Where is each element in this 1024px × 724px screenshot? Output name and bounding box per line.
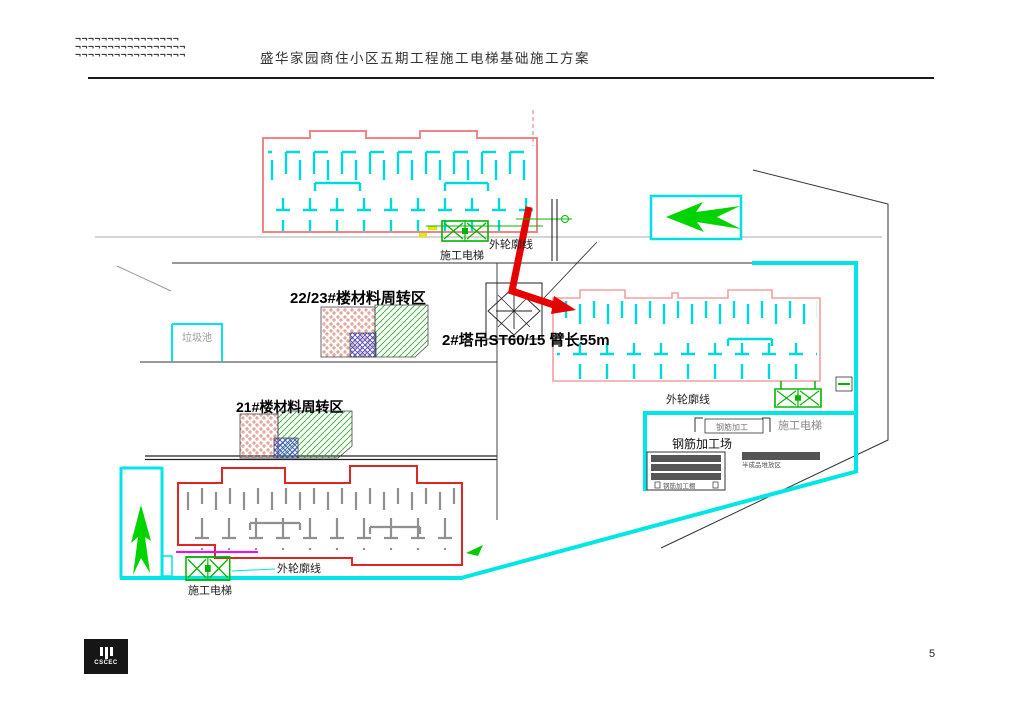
crane-label: 2#塔吊ST60/15 臂长55m (442, 331, 610, 349)
document-page: ¬¬¬¬¬¬¬¬¬¬¬¬¬¬¬¬ ¬¬¬¬¬¬¬¬¬¬¬¬¬¬¬¬¬ ¬¬¬¬¬… (0, 0, 1024, 724)
rebar-box-label: 钢筋加工 (716, 422, 748, 432)
page-number: 5 (929, 648, 935, 660)
small-green-arrow-icon (466, 545, 483, 556)
rebar-yard-label: 钢筋加工场 (672, 436, 732, 451)
rebar-note-bottom: 钢筋加工棚 (663, 481, 696, 490)
building-top (263, 131, 537, 232)
rebar-note-right: 半成品堆放区 (742, 460, 782, 469)
footer-company-logo: CSCEC (84, 639, 128, 674)
site-plan-drawing: 施工电梯 外轮廓线 22/23#楼材料周转区 2#塔吊ST60/15 臂长55m… (0, 0, 1024, 724)
outline-bottom-label: 外轮廓线 (277, 561, 321, 575)
outline-right-label: 外轮廓线 (666, 392, 710, 406)
zone-2223-label: 22/23#楼材料周转区 (290, 289, 426, 307)
zone-21-label: 21#楼材料周转区 (236, 399, 343, 415)
direction-arrow-left-box (651, 196, 741, 239)
logo-bars-icon (100, 647, 113, 659)
logo-text: CSCEC (94, 660, 118, 666)
building-bottom (176, 466, 462, 565)
hoist-right (775, 389, 821, 407)
material-zone-2223-shapes (321, 305, 428, 357)
garbage-pit-label: 垃圾池 (182, 331, 212, 344)
outline-top-label: 外轮廓线 (489, 237, 533, 251)
hoist-right-label: 施工电梯 (778, 419, 822, 432)
hoist-bottom-label: 施工电梯 (188, 584, 232, 597)
up-arrow-icon (131, 505, 151, 575)
hoist-top-label: 施工电梯 (440, 249, 484, 262)
material-zone-21-shapes (240, 411, 352, 458)
